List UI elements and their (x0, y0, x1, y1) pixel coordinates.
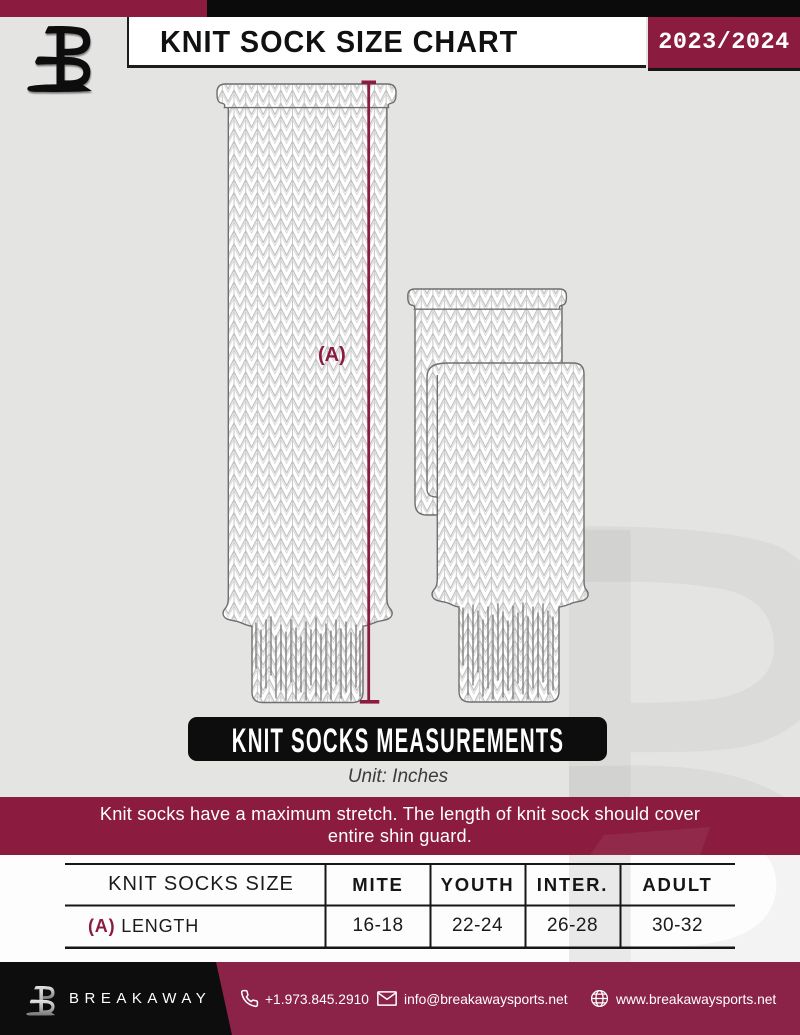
svg-text:(A): (A) (318, 344, 346, 366)
